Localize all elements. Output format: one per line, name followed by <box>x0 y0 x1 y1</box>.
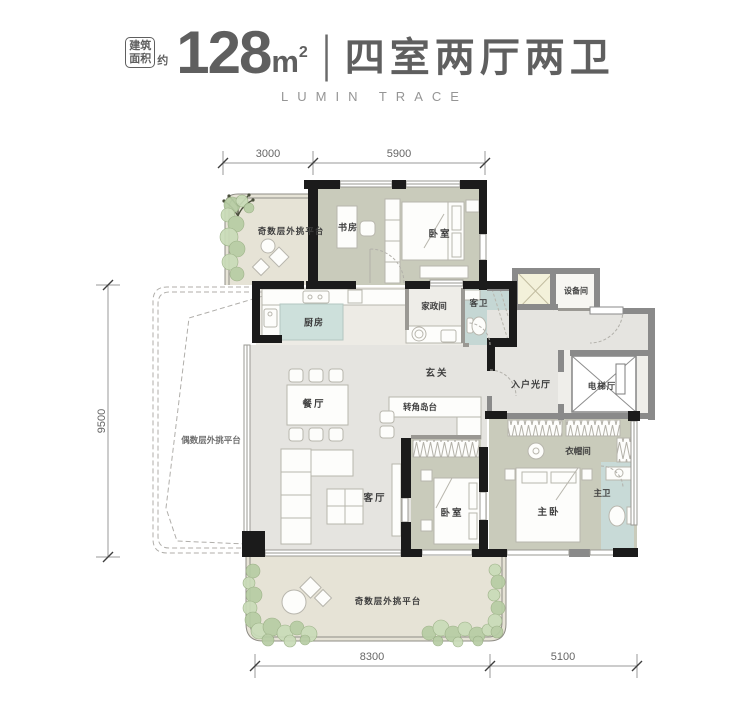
fridge <box>348 290 362 303</box>
island-counter <box>389 397 481 417</box>
dim-left-1: 9500 <box>96 409 108 433</box>
kitchen-counter <box>262 289 408 305</box>
dining-table <box>287 385 348 425</box>
sink <box>303 291 329 303</box>
dim-bottom-2: 5100 <box>551 651 575 663</box>
floor-plan: 3000 5900 9500 8300 5100 <box>0 0 740 723</box>
nightstand <box>466 200 479 212</box>
dim-top-2: 5900 <box>387 148 411 160</box>
basin <box>464 290 480 300</box>
floorplan-page: 3000 5900 9500 8300 5100 奇数层外挑平台 书房 卧室 厨… <box>0 0 740 723</box>
desk <box>337 206 357 248</box>
dim-top-1: 3000 <box>256 148 280 160</box>
chair <box>360 221 375 236</box>
toilet-icon <box>609 506 625 526</box>
tv-cabinet <box>392 464 401 536</box>
kitchen-island <box>280 304 343 340</box>
bench <box>420 266 468 278</box>
dim-bottom-1: 8300 <box>360 651 384 663</box>
entry-door-leaf <box>590 307 623 314</box>
sofa <box>281 449 311 544</box>
